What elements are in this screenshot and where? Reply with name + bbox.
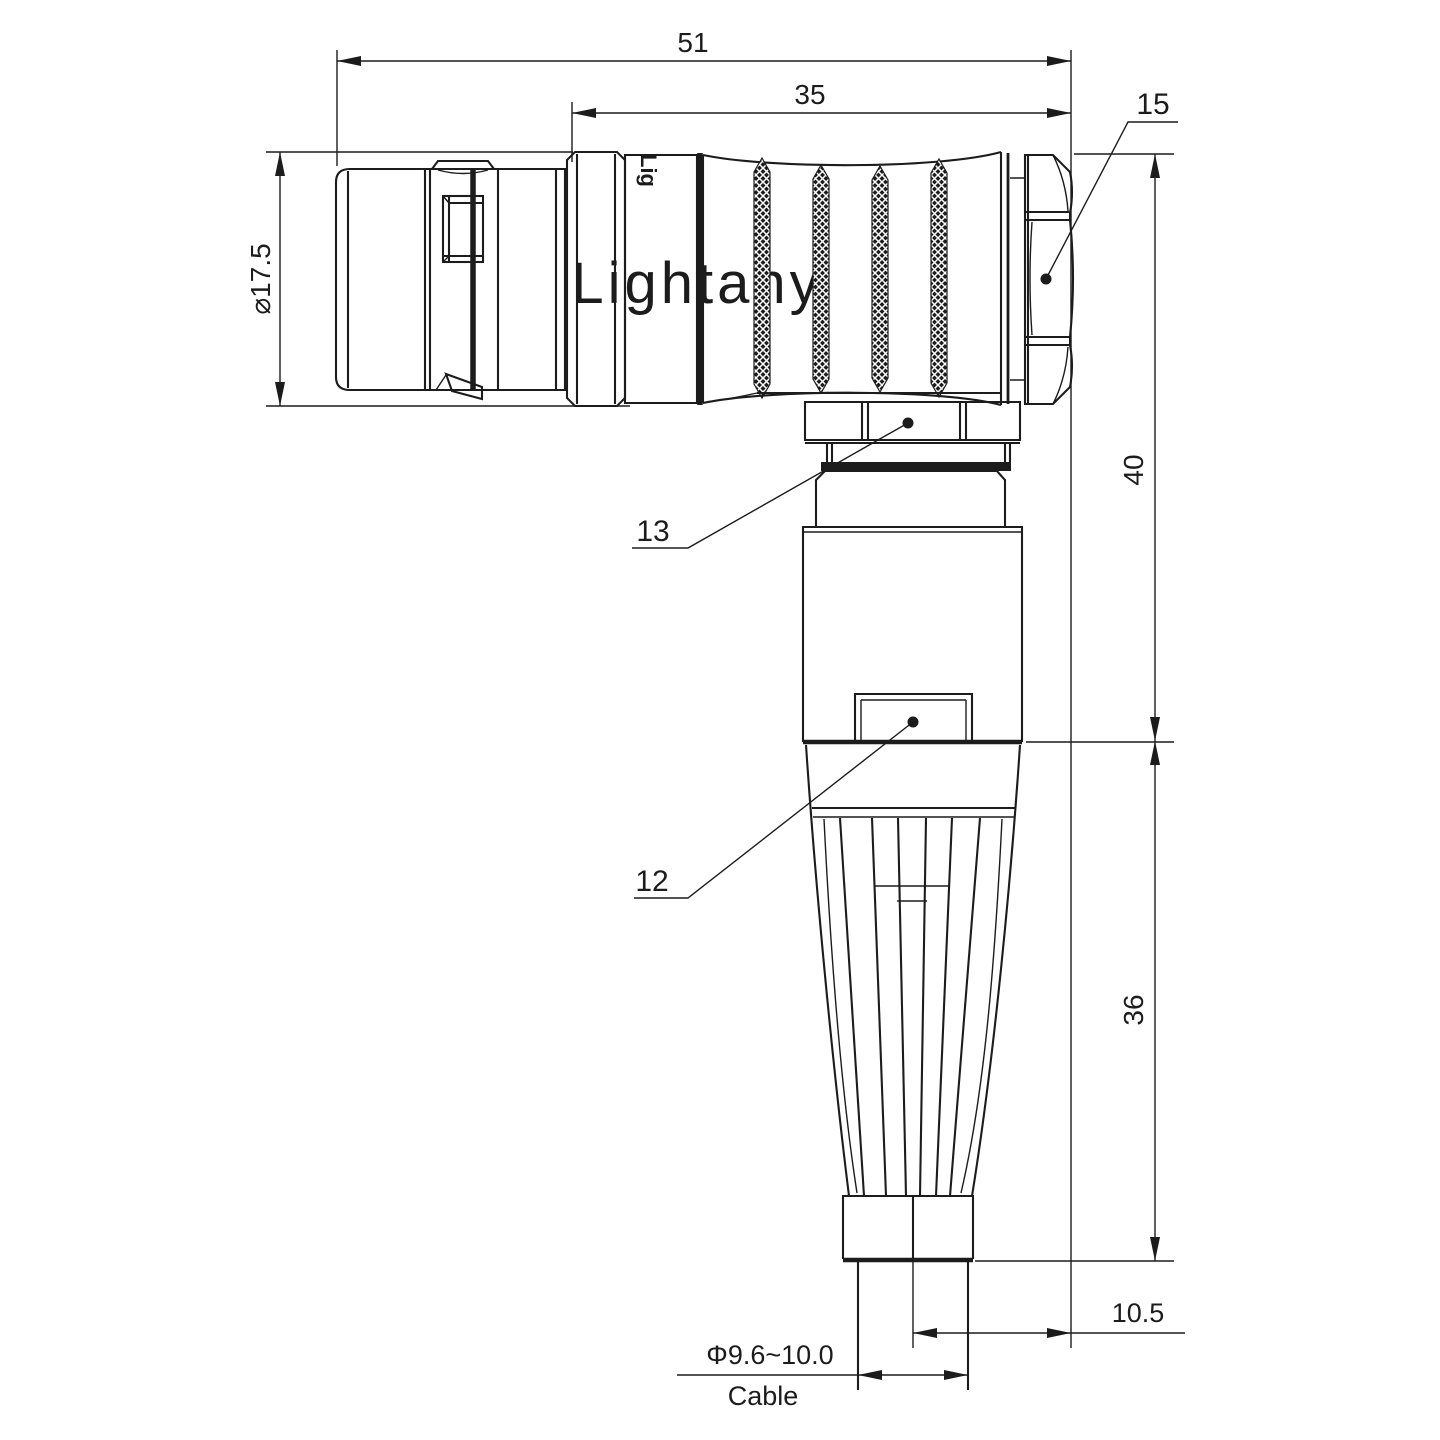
connector-drawing: Lightany (0, 0, 1440, 1440)
body-print-text: Lig (636, 154, 661, 187)
cable-word-label: Cable (728, 1381, 799, 1411)
dim-label-cable-diameter: Φ9.6~10.0 (706, 1340, 833, 1370)
dim-rear-length: 35 (572, 79, 1071, 162)
dim-label-40: 40 (1118, 454, 1149, 485)
dim-lower-height: 36 (975, 741, 1174, 1261)
dim-label-17-5: ⌀17.5 (245, 243, 276, 314)
cable-lines (858, 1262, 968, 1390)
latch-bump (432, 161, 494, 169)
elbow-shoulder (703, 393, 757, 403)
elbow-housing (803, 402, 1022, 1390)
end-ferrule (843, 1196, 973, 1260)
knurl-strip (931, 159, 947, 397)
dim-label-10-5: 10.5 (1112, 1298, 1165, 1328)
strain-relief (806, 745, 1020, 1196)
technical-drawing-page: Lightany (0, 0, 1440, 1440)
leader-coupling-nut: 13 (632, 418, 914, 549)
dim-cable-offset: 10.5 (913, 1298, 1185, 1338)
dim-label-51: 51 (677, 27, 708, 58)
dim-upper-height: 40 (1026, 154, 1174, 742)
knurl-strip (872, 166, 888, 392)
leader-hex-nut: 15 (1041, 88, 1179, 285)
part-label-15: 15 (1136, 88, 1169, 121)
dim-cable-diameter: Φ9.6~10.0 Cable (677, 1340, 968, 1411)
seal-ring (821, 462, 1011, 471)
latch-window (443, 196, 483, 262)
front-barrel (336, 161, 565, 399)
main-cylinder (803, 527, 1022, 742)
part-label-13: 13 (636, 515, 669, 548)
dim-label-36: 36 (1118, 994, 1149, 1025)
upper-body (816, 471, 1005, 527)
part-label-12: 12 (635, 865, 668, 898)
knurl-strip (754, 158, 770, 398)
dim-label-35: 35 (794, 79, 825, 110)
knurl-strip (813, 165, 829, 393)
